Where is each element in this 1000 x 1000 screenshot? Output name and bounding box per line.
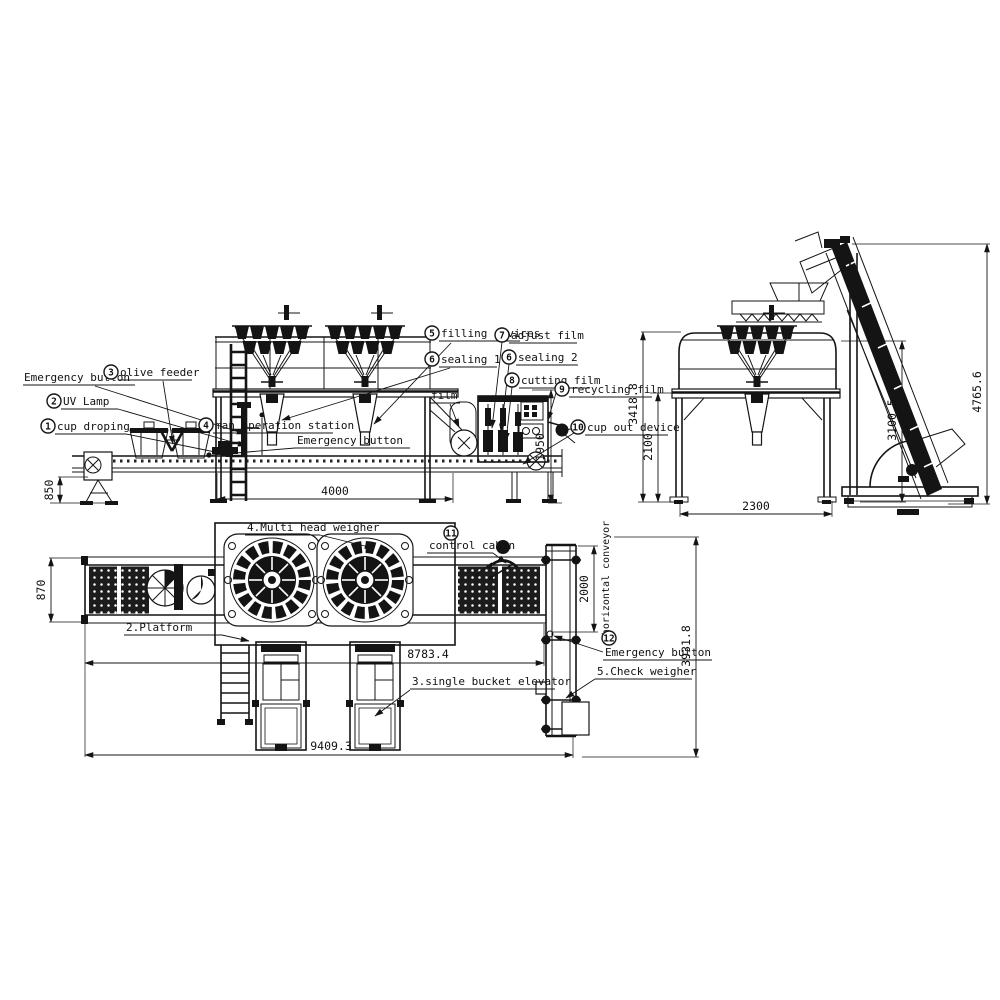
callout-man-operation-station: 4 man operation station [199,418,354,433]
svg-text:olive feeder: olive feeder [120,366,200,379]
side-weigher [717,305,797,445]
svg-text:7: 7 [499,331,505,342]
side-feeder-tray [732,283,828,322]
svg-text:recycling film: recycling film [571,383,664,396]
svg-text:4765.6: 4765.6 [970,371,984,413]
dim-side-2300: 2300 [680,499,832,517]
svg-text:UV Lamp: UV Lamp [63,395,109,408]
svg-text:5: 5 [429,329,435,340]
svg-text:man operation station: man operation station [215,419,354,432]
dim-plan-870: 870 [34,558,84,622]
plan-view: 870 2000 3931.8 8783.4 9409.3 4.Multi he… [34,521,712,758]
callout-recycling-film: 9 recycling film [548,382,664,420]
svg-text:4: 4 [203,421,209,432]
svg-text:horizontal conveyor: horizontal conveyor [601,521,612,635]
svg-text:adjust film: adjust film [511,329,584,342]
svg-text:control cabin: control cabin [429,539,515,552]
front-elevation-view: 850 4000 1950 Emergency button 2 UV Lamp… [23,305,680,505]
side-note-n: n [923,479,930,492]
plan-feeder-units [147,564,215,610]
svg-text:2: 2 [51,397,57,408]
svg-text:5.Check weigher: 5.Check weigher [597,665,697,678]
svg-text:1: 1 [45,422,51,433]
svg-text:3418.8: 3418.8 [626,383,640,425]
svg-text:870: 870 [34,580,48,601]
svg-text:film: film [431,389,458,402]
svg-text:9409.3: 9409.3 [310,739,352,753]
svg-text:4.Multi head weigher: 4.Multi head weigher [247,521,380,534]
svg-text:Emergency button: Emergency button [297,434,403,447]
svg-text:sealing 2: sealing 2 [518,351,578,364]
svg-text:8: 8 [509,376,515,387]
callout-check-weigher: 5.Check weigher [566,665,697,698]
callout-emergency-button-2: Emergency button [206,434,410,458]
callout-sealing-1: 6 sealing 1 [282,352,501,420]
callout-film: film [429,389,460,427]
side-elevation-view: 3418.8 2100 3100.5 4765.6 2300 n [626,232,990,517]
svg-text:2300: 2300 [742,499,770,513]
plan-bucket-elevator-1 [252,642,310,751]
plan-weigher-2 [317,534,413,626]
dim-plan-8783-4: 8783.4 [85,624,544,757]
svg-text:Emergency button: Emergency button [605,646,711,659]
svg-text:6: 6 [506,353,512,364]
plan-weigher-1 [224,534,320,626]
svg-text:8783.4: 8783.4 [407,647,449,661]
svg-text:3.single bucket elevator: 3.single bucket elevator [412,675,571,688]
svg-text:6: 6 [429,355,435,366]
svg-text:cup droping: cup droping [57,420,130,433]
svg-text:3: 3 [108,368,114,379]
svg-text:2100: 2100 [641,433,655,461]
engineering-drawing: 850 4000 1950 Emergency button 2 UV Lamp… [0,0,1000,1000]
callout-single-bucket-elevator: 3.single bucket elevator [375,675,571,716]
svg-text:3100.5: 3100.5 [885,399,899,441]
svg-text:2000: 2000 [577,575,591,603]
svg-text:12: 12 [603,634,614,645]
svg-text:sealing 1: sealing 1 [441,353,501,366]
dim-front-4000: 4000 [217,473,453,503]
plan-bucket-elevator-2 [346,642,404,751]
plan-stairs [217,645,253,725]
svg-text:11: 11 [445,529,457,540]
dim-side-2100: 2100 [641,393,678,502]
dim-side-3418-8: 3418.8 [626,332,681,502]
svg-text:4000: 4000 [321,484,349,498]
dim-front-850: 850 [42,477,118,503]
drawing-sheet: 850 4000 1950 Emergency button 2 UV Lamp… [0,0,1000,1000]
svg-text:2.Platform: 2.Platform [126,621,193,634]
svg-text:10: 10 [572,423,584,434]
svg-text:850: 850 [42,480,56,501]
front-conveyor [72,449,562,505]
callout-horizontal-conveyor: horizontal conveyor 12 [601,521,616,645]
dim-plan-9409-3: 9409.3 [85,736,573,758]
side-bucket-elevator [795,232,978,515]
front-packing-machine [450,396,575,462]
svg-text:9: 9 [559,385,565,396]
